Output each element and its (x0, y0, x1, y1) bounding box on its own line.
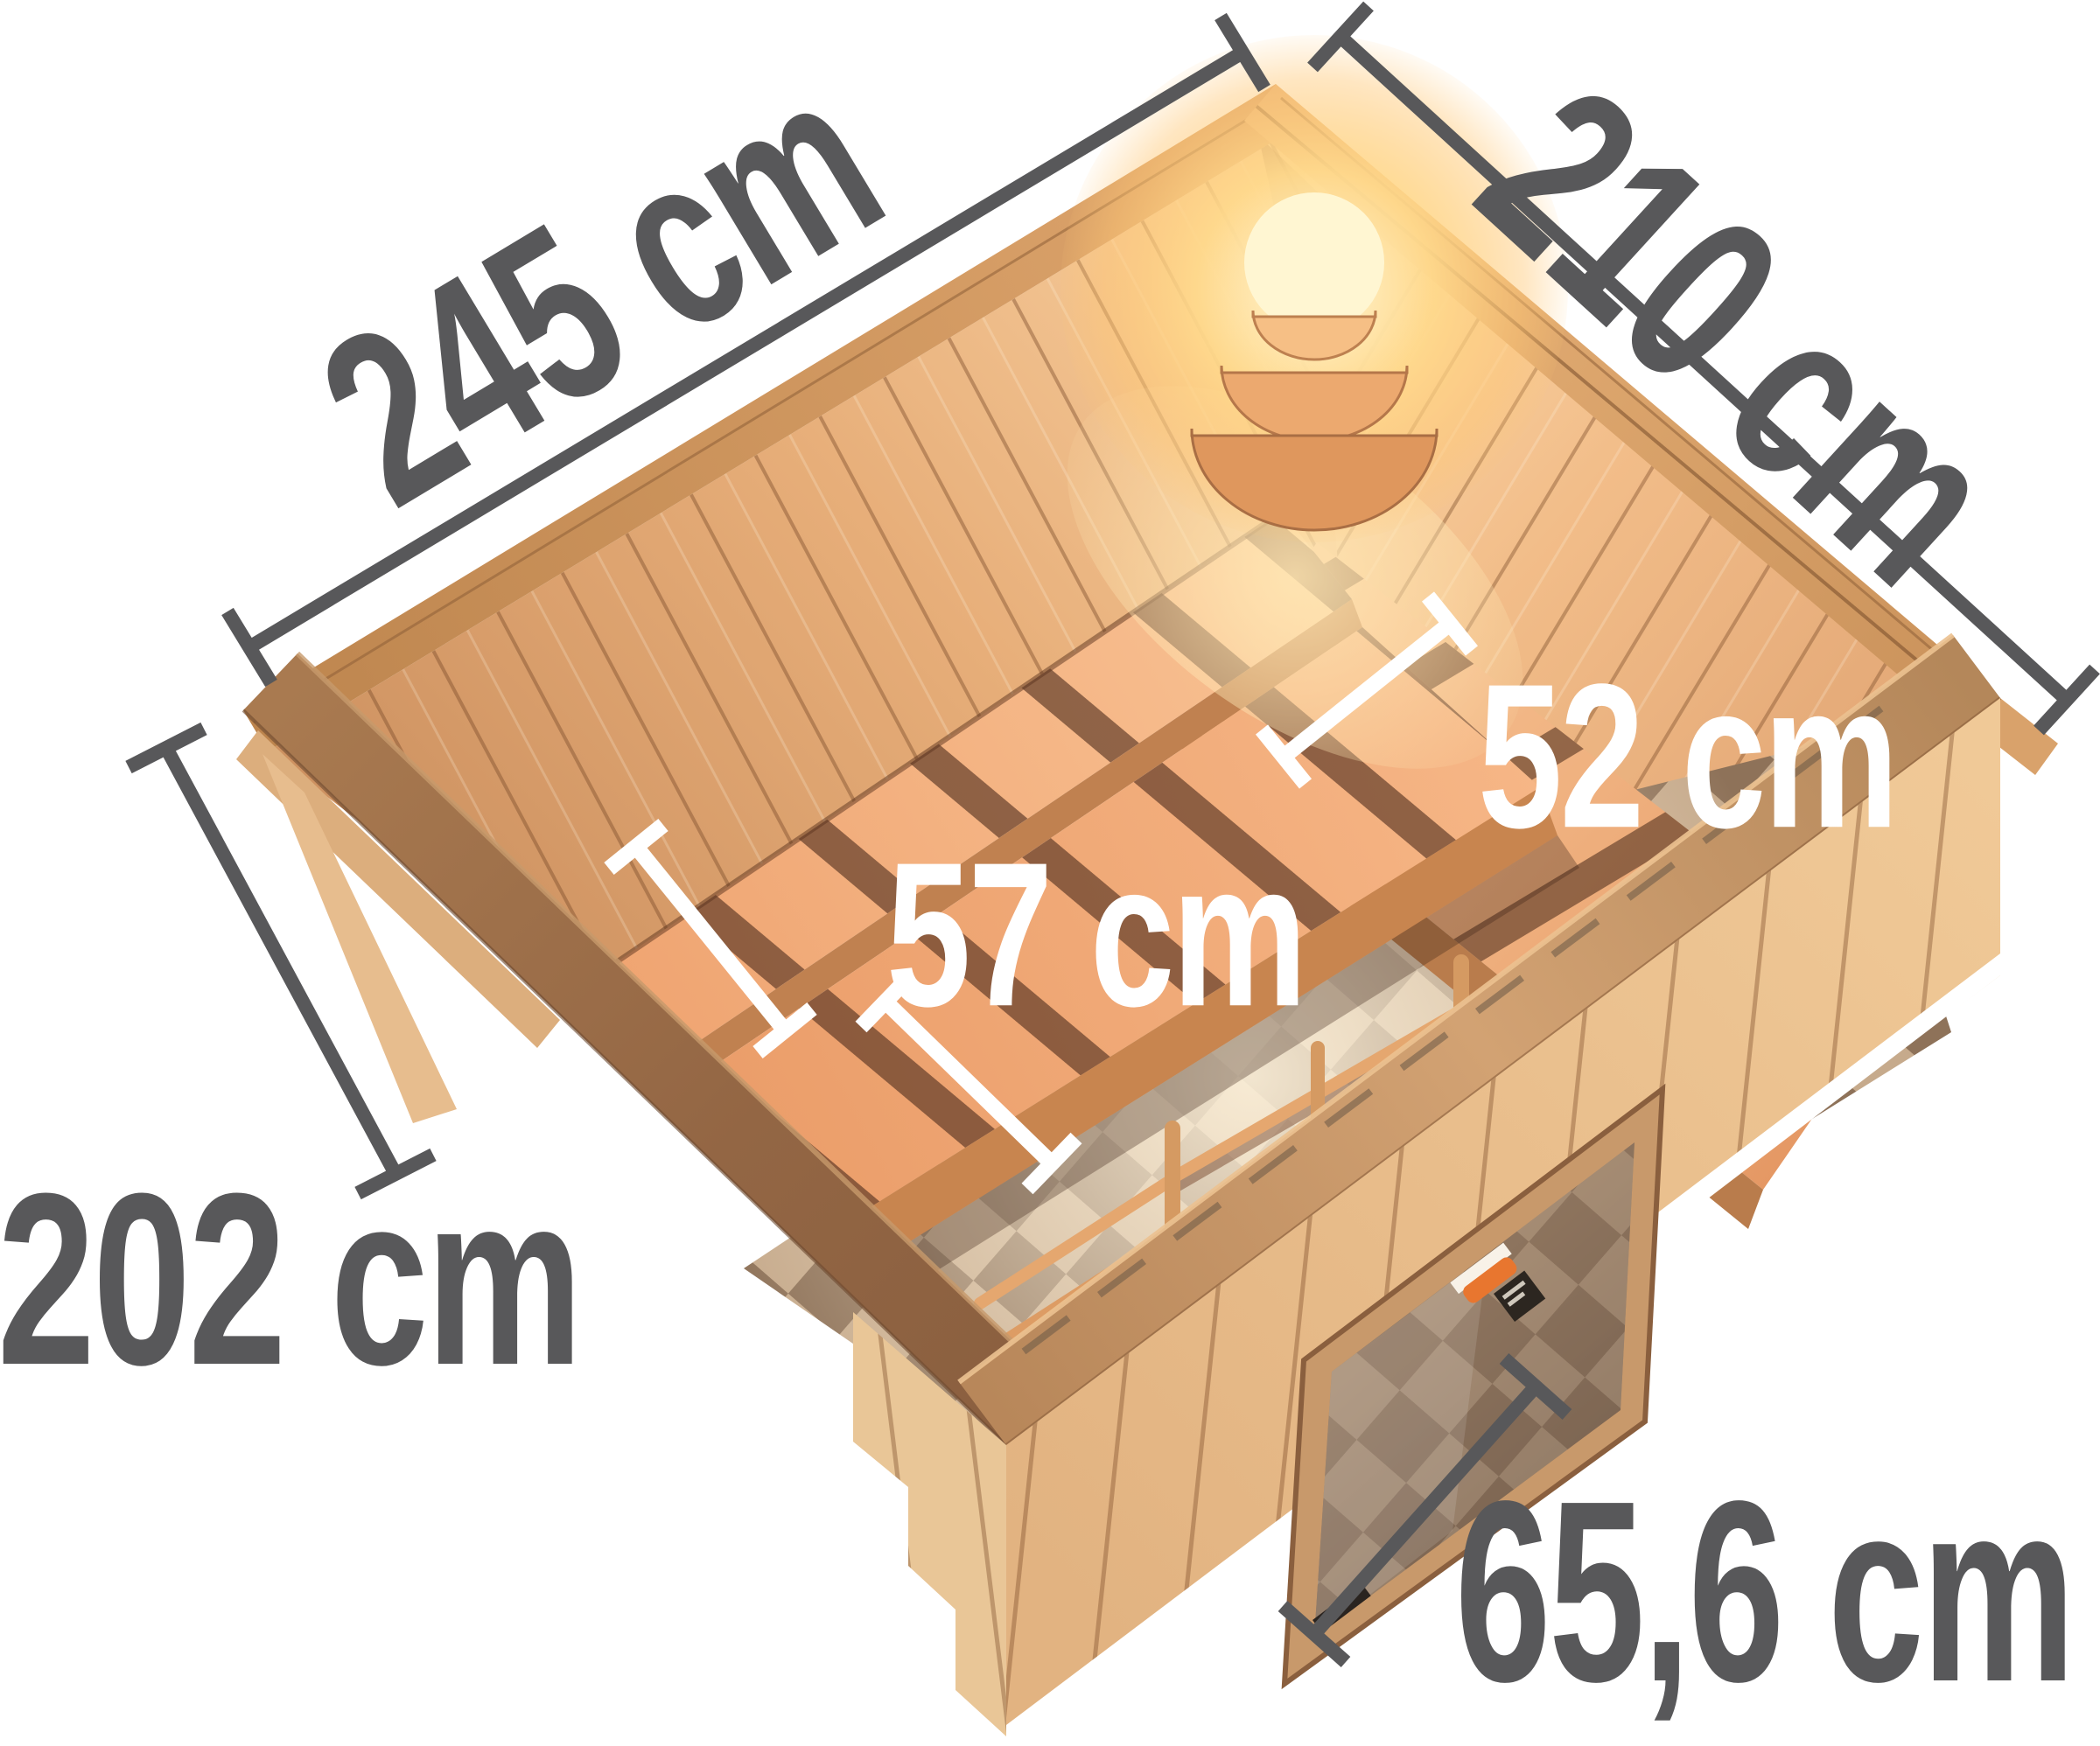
dimension-label-bench-lower: 57 cm (886, 820, 1305, 1050)
sauna-illustration: 245 cm 210 cm 202 cm 52 cm 57 cm 65,6 cm (0, 0, 2100, 1746)
dimension-label-door-width: 65,6 cm (1455, 1449, 2073, 1736)
lamp-bulb-glow (1244, 192, 1384, 332)
dimension-label-height: 202 cm (0, 1142, 580, 1415)
dimension-label-bench-upper: 52 cm (1478, 641, 1896, 871)
sauna-dimension-diagram: 245 cm 210 cm 202 cm 52 cm 57 cm 65,6 cm (0, 0, 2100, 1746)
